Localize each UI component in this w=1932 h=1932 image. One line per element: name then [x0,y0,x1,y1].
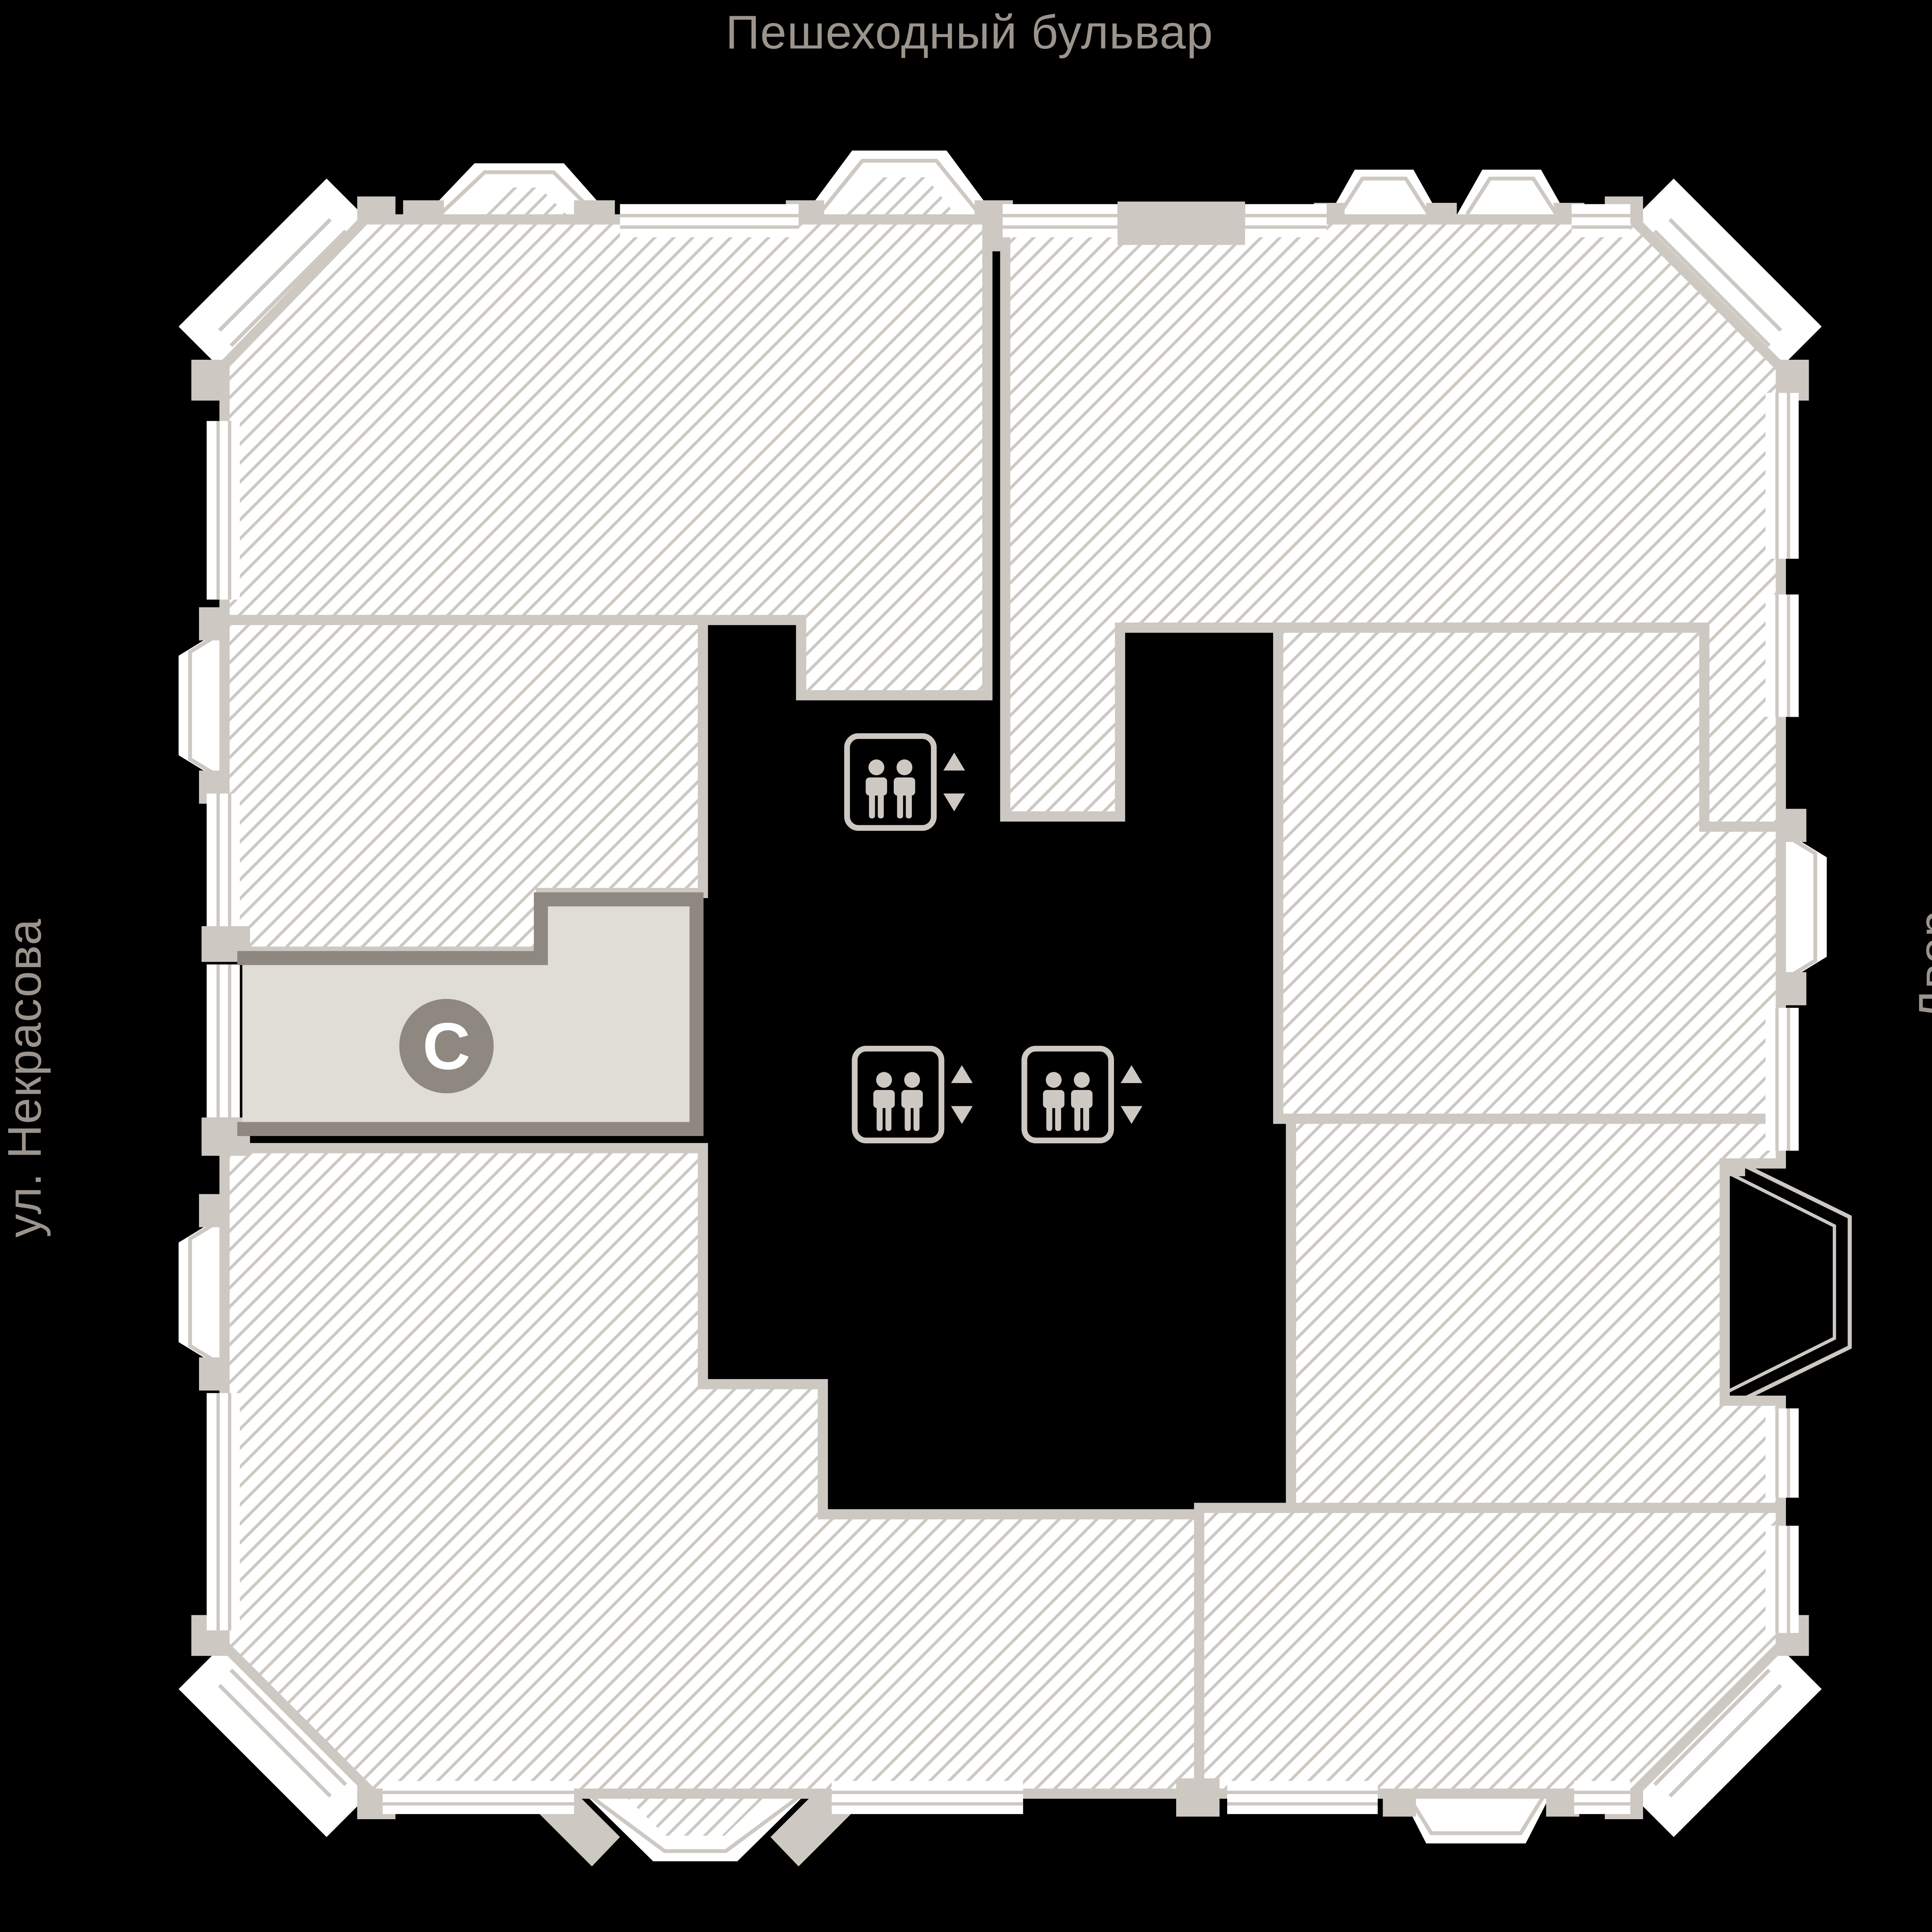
floor-plan-page: С Пешеходный бульвар ул. Печёрская ул. Н… [0,0,1932,1932]
apartment-right-lower-middle[interactable] [1291,1119,1781,1508]
street-label-left: ул. Некрасова [0,918,51,1238]
wall-pier [1117,202,1245,245]
selected-apartment-badge-letter: С [423,1010,471,1083]
street-label-bottom: ул. Печёрская [890,1922,1207,1932]
wall-pier [1176,1778,1219,1816]
apartment-right-middle[interactable] [1278,628,1781,1119]
street-label-right: Двор [1909,910,1932,1022]
street-label-top: Пешеходный бульвар [726,5,1213,58]
floor-plan-canvas: С Пешеходный бульвар ул. Печёрская ул. Н… [0,0,1932,1932]
selected-apartment-badge[interactable]: С [399,999,493,1093]
